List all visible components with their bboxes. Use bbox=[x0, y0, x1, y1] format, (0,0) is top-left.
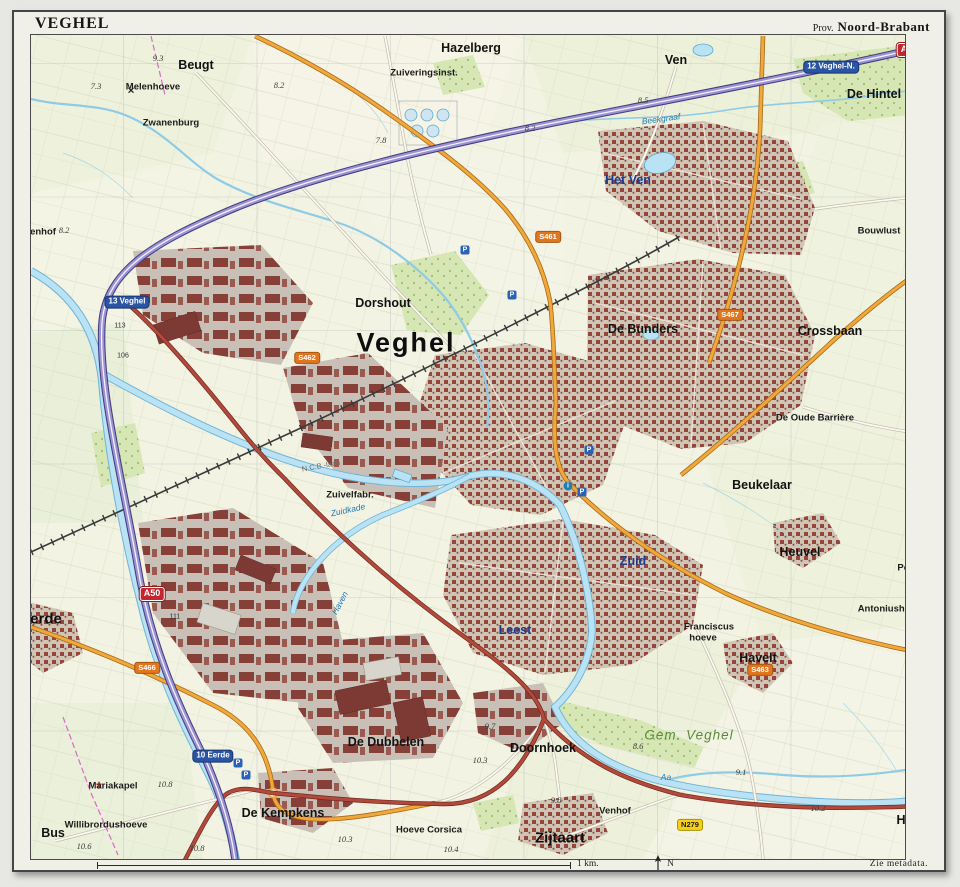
map-label-antoniushoeve: Antoniushoeve bbox=[858, 604, 906, 614]
parking-icon-parking: P bbox=[578, 488, 587, 497]
map-label-de-hintel: De Hintel bbox=[847, 88, 901, 101]
road-shield-s466: S466 bbox=[134, 662, 160, 674]
map-label-aa: Aa bbox=[661, 773, 671, 782]
map-label-de-bunders: De Bunders bbox=[608, 323, 678, 336]
map-label-8-5: 8.5 bbox=[638, 96, 649, 105]
map-sheet: VEGHEL Prov. Noord-Brabant bbox=[12, 10, 946, 872]
road-shield-s461: S461 bbox=[535, 231, 561, 243]
map-label-hoeve: hoeve bbox=[689, 633, 716, 643]
map-label-haven: Haven bbox=[330, 590, 349, 616]
map-label-9-1: 9.1 bbox=[736, 768, 747, 777]
map-label-dorshout: Dorshout bbox=[355, 297, 411, 310]
road-shield-s462: S462 bbox=[294, 352, 320, 364]
map-label-10-4: 10.4 bbox=[444, 845, 459, 854]
map-label-zuiveringsinst: Zuiveringsinst. bbox=[390, 68, 458, 78]
map-label-crossbaan: Crossbaan bbox=[798, 325, 863, 338]
map-label-10-8: 10.8 bbox=[158, 780, 173, 789]
road-shield-10-eerde: 10 Eerde bbox=[192, 750, 233, 763]
map-label-113: 113 bbox=[114, 323, 125, 330]
road-shield-n279: N279 bbox=[677, 819, 703, 831]
map-label-10-3: 10.3 bbox=[338, 835, 353, 844]
parking-icon-parking: P bbox=[585, 446, 594, 455]
map-label-franciscus: Franciscus bbox=[684, 622, 734, 632]
map-label-pompstat: Pompstat bbox=[897, 563, 906, 573]
road-shield-s463: S463 bbox=[747, 664, 773, 676]
map-label-9-3: 9.3 bbox=[153, 54, 164, 63]
map-title: VEGHEL bbox=[35, 15, 109, 33]
map-label-venhof: Venhof bbox=[599, 806, 631, 816]
map-label-zuivelfabr: Zuivelfabr. bbox=[326, 490, 374, 500]
map-label-8-6: 8.6 bbox=[633, 742, 644, 751]
map-label-bus: Bus bbox=[41, 827, 65, 840]
road-shield-a50: A50 bbox=[140, 587, 165, 601]
north-arrow-icon bbox=[652, 855, 664, 871]
map-label-veghel: Veghel bbox=[356, 330, 455, 357]
mill-icon-mill: ✕ bbox=[127, 87, 135, 96]
map-label-havelt: Havelt bbox=[739, 652, 777, 665]
map-label-10-8: 10.8 bbox=[190, 844, 205, 853]
map-label-beukelaar: Beukelaar bbox=[732, 479, 792, 492]
parking-icon-parking: P bbox=[242, 771, 251, 780]
map-label-bouwlust: Bouwlust bbox=[858, 226, 901, 236]
map-label-9-7: 9.7 bbox=[485, 722, 496, 731]
parking-icon-parking: P bbox=[234, 759, 243, 768]
map-label-8-2: 8.2 bbox=[525, 124, 536, 133]
map-label-doornhoek: Doornhoek bbox=[510, 742, 576, 755]
north-label: N bbox=[667, 859, 674, 869]
map-label-de-oude-barri-re: De Oude Barrière bbox=[776, 413, 854, 423]
map-label-leest: Leest bbox=[499, 624, 532, 637]
map-label-zijtaart: Zijtaart bbox=[535, 831, 585, 846]
province-name: Noord-Brabant bbox=[838, 19, 930, 34]
map-label-111: 111 bbox=[170, 614, 181, 621]
road-shield-12-veghel-n: 12 Veghel-N. bbox=[803, 61, 859, 74]
map-viewport: VeghelZijtaarterdeBeugtHazelbergVenDe Hi… bbox=[30, 34, 906, 860]
map-label-7-8: 7.8 bbox=[376, 136, 387, 145]
map-label-ham: Ham bbox=[896, 814, 906, 827]
map-label-9-6: 9.6 bbox=[905, 311, 906, 320]
map-label-erde: erde bbox=[30, 612, 62, 627]
parking-icon-parking: P bbox=[461, 246, 470, 255]
map-label-ven: Ven bbox=[665, 54, 687, 67]
metadata-note: Zie metadata. bbox=[870, 859, 928, 869]
map-label-10-3: 10.3 bbox=[473, 756, 488, 765]
map-label-zwanenburg: Zwanenburg bbox=[143, 118, 199, 128]
province-prefix: Prov. bbox=[813, 23, 834, 34]
map-label-heuvel: Heuvel bbox=[780, 546, 821, 559]
map-label-8-2: 8.2 bbox=[274, 81, 285, 90]
road-shield-a50: A50 bbox=[897, 43, 906, 57]
map-label-10-6: 10.6 bbox=[77, 842, 92, 851]
map-label-8-2: 8.2 bbox=[59, 226, 70, 235]
map-label-enhof: enhof bbox=[30, 227, 56, 237]
map-label-de-dubbelen: De Dubbelen bbox=[348, 736, 424, 749]
road-shield-s467: S467 bbox=[717, 309, 743, 321]
cross-icon-cross: ✝ bbox=[95, 782, 103, 791]
map-label-willibrordushoeve: Willibrordushoeve bbox=[65, 820, 148, 830]
map-label-hazelberg: Hazelberg bbox=[441, 42, 501, 55]
map-label-106: 106 bbox=[117, 353, 129, 360]
map-label-7-3: 7.3 bbox=[91, 82, 102, 91]
scale-bar-label: 1 km. bbox=[577, 859, 599, 869]
map-label-beekgraaf: Beekgraaf bbox=[641, 112, 681, 126]
map-label-10-2: 10.2 bbox=[811, 804, 826, 813]
info-icon-info: i bbox=[564, 482, 573, 491]
map-label-de-kempkens: De Kempkens bbox=[242, 807, 325, 820]
map-label-layer: VeghelZijtaarterdeBeugtHazelbergVenDe Hi… bbox=[30, 34, 906, 860]
road-shield-13-veghel: 13 Veghel bbox=[105, 296, 150, 309]
map-label-hoeve-corsica: Hoeve Corsica bbox=[396, 825, 462, 835]
parking-icon-parking: P bbox=[508, 291, 517, 300]
scale-bar bbox=[97, 865, 571, 866]
map-label-zuidkade: Zuidkade bbox=[330, 502, 366, 518]
map-canvas: VeghelZijtaarterdeBeugtHazelbergVenDe Hi… bbox=[30, 34, 906, 860]
map-label-het-ven: Het Ven bbox=[605, 174, 651, 187]
map-label-beugt: Beugt bbox=[178, 59, 213, 72]
map-label-9-8: 9.8 bbox=[551, 796, 562, 805]
map-label-zuid: Zuid bbox=[620, 555, 646, 568]
map-label-n-c-b-laan: N.C.B.-laan bbox=[301, 459, 340, 473]
map-label-gem-veghel: Gem. Veghel bbox=[644, 728, 733, 742]
